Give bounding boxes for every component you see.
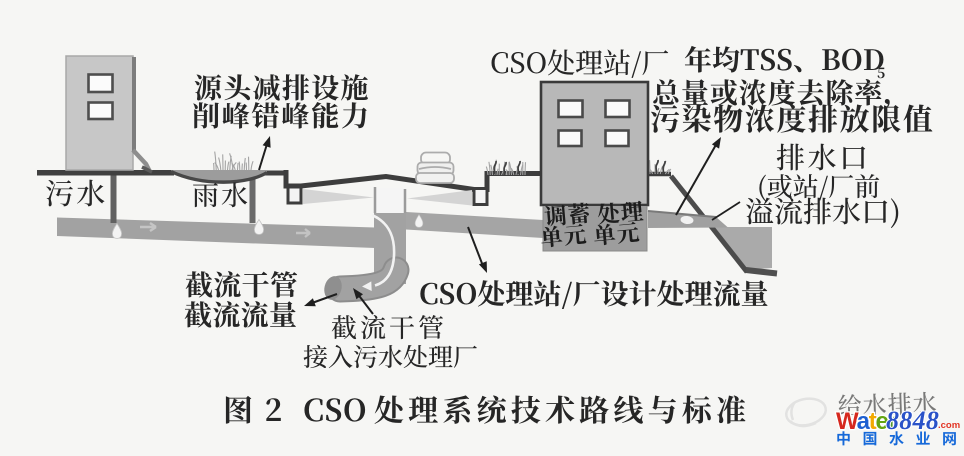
svg-text:8848: 8848: [886, 406, 939, 435]
svg-text:.com: .com: [938, 420, 960, 431]
